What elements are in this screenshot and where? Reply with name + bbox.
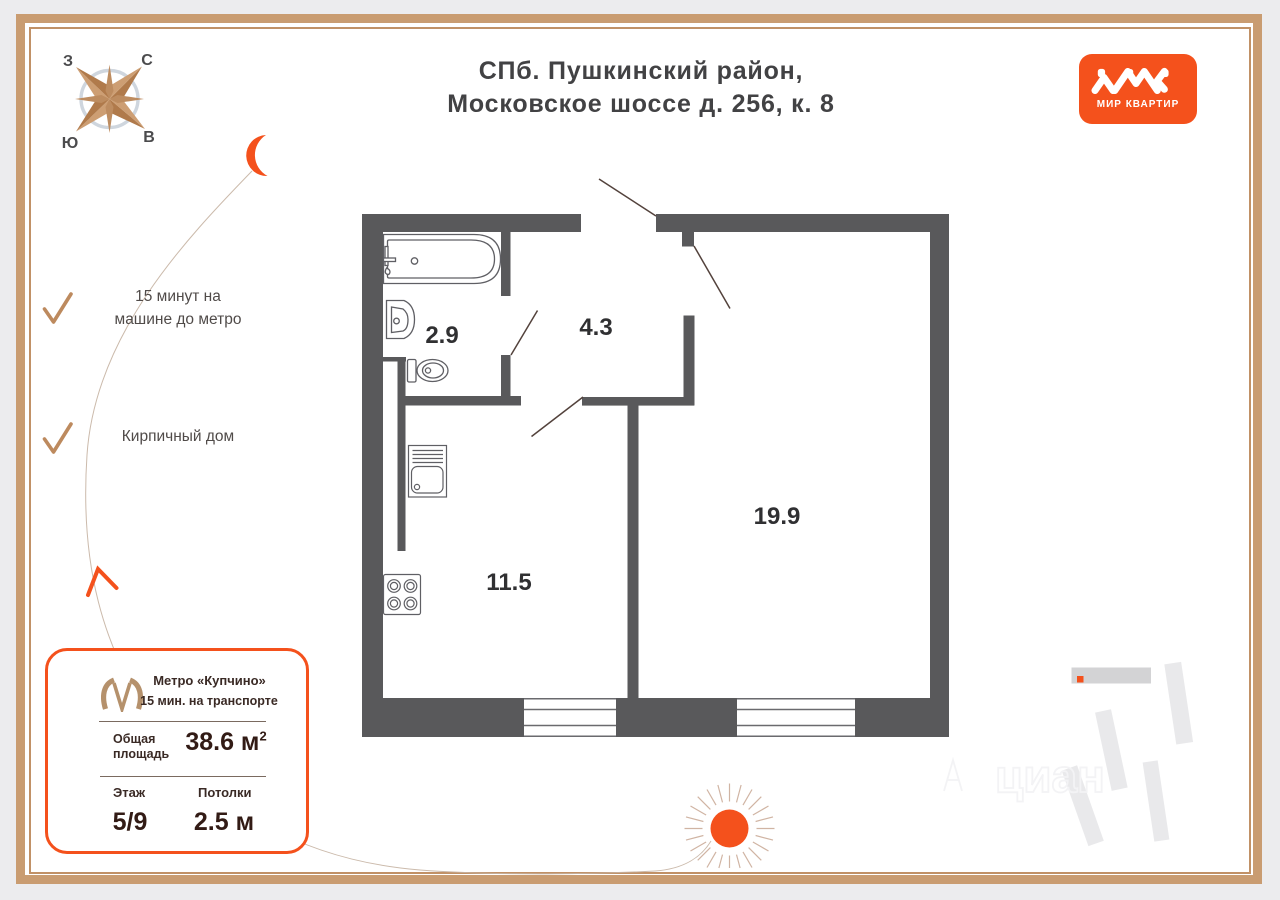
svg-text:Ю: Ю [62,135,79,152]
svg-text:С: С [141,52,153,69]
svg-text:циан: циан [995,750,1105,802]
svg-text:В: В [143,129,155,146]
svg-text:З: З [63,53,73,70]
